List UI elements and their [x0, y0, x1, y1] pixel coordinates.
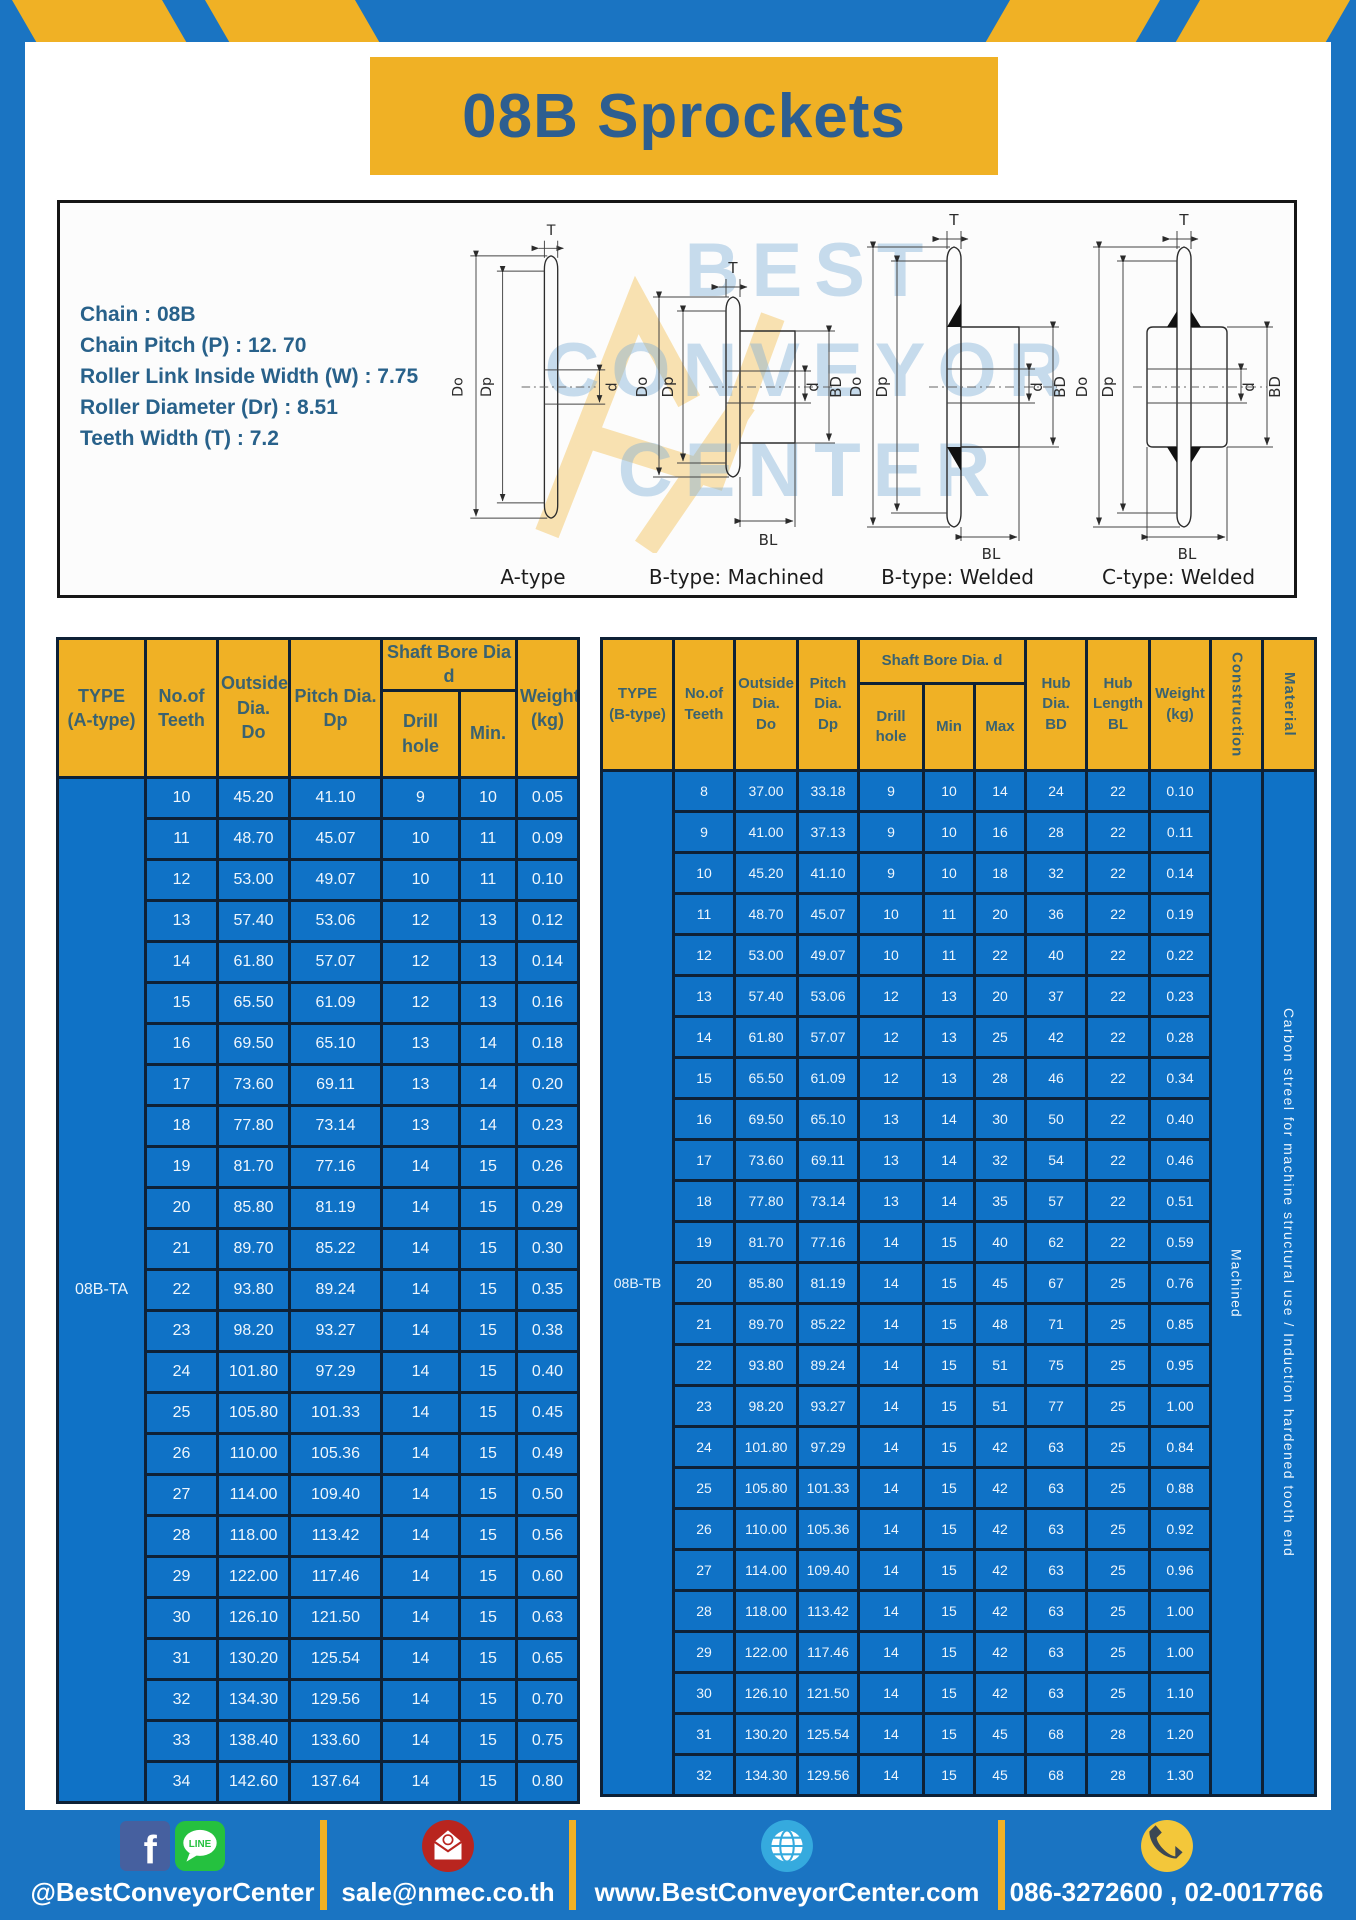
cell: 31	[674, 1714, 735, 1755]
cell: 0.09	[517, 818, 579, 859]
cell: 0.16	[517, 982, 579, 1023]
svg-text:Do: Do	[633, 377, 651, 398]
cell: 73.60	[218, 1064, 290, 1105]
cell: 57.07	[290, 941, 382, 982]
cell: 81.70	[218, 1146, 290, 1187]
cell: 14	[382, 1187, 460, 1228]
cell: 105.36	[290, 1433, 382, 1474]
cell: 10	[382, 818, 460, 859]
col-header-outside-dia: Outside Dia. Do	[218, 639, 290, 778]
cell: 42	[975, 1468, 1026, 1509]
cell: 15	[460, 1597, 517, 1638]
cell: 19	[146, 1146, 218, 1187]
svg-text:Do: Do	[1073, 377, 1091, 398]
col-header-hub-dia: Hub Dia. BD	[1026, 639, 1087, 771]
cell: 114.00	[735, 1550, 798, 1591]
cell: 13	[382, 1023, 460, 1064]
cell: 49.07	[290, 859, 382, 900]
table-b-type: TYPE (B-type) No.of Teeth Outside Dia. D…	[600, 637, 1317, 1797]
cell: 14	[859, 1509, 924, 1550]
right-border	[1331, 40, 1356, 1920]
cell: 26	[674, 1509, 735, 1550]
footer-divider	[320, 1820, 327, 1910]
cell: 25	[1087, 1345, 1150, 1386]
cell: 0.14	[517, 941, 579, 982]
cell: 14	[924, 1099, 975, 1140]
cell: 8	[674, 771, 735, 812]
cell: 93.80	[218, 1269, 290, 1310]
cell: 28	[1087, 1755, 1150, 1796]
cell: 97.29	[798, 1427, 859, 1468]
cell: 13	[924, 1058, 975, 1099]
cell: 68	[1026, 1755, 1087, 1796]
cell: 1.10	[1150, 1673, 1211, 1714]
cell: 14	[460, 1105, 517, 1146]
cell: 15	[146, 982, 218, 1023]
website-url[interactable]: www.BestConveyorCenter.com	[595, 1877, 980, 1908]
cell: 20	[674, 1263, 735, 1304]
cell: 113.42	[290, 1515, 382, 1556]
cell: 22	[1087, 1058, 1150, 1099]
cell: 15	[924, 1509, 975, 1550]
cell: 14	[382, 1515, 460, 1556]
cell: 0.40	[517, 1351, 579, 1392]
cell: 21	[674, 1304, 735, 1345]
cell: 10	[460, 777, 517, 818]
cell: 14	[859, 1386, 924, 1427]
cell: 0.75	[517, 1720, 579, 1761]
svg-text:T: T	[727, 259, 738, 277]
cell: 125.54	[798, 1714, 859, 1755]
cell: 14	[382, 1761, 460, 1802]
cell: 0.23	[517, 1105, 579, 1146]
cell: 122.00	[735, 1632, 798, 1673]
cell: 142.60	[218, 1761, 290, 1802]
cell: 137.64	[290, 1761, 382, 1802]
cell: 15	[924, 1263, 975, 1304]
cell: 0.65	[517, 1638, 579, 1679]
cell: 109.40	[798, 1550, 859, 1591]
cell: 63	[1026, 1427, 1087, 1468]
cell: 48.70	[218, 818, 290, 859]
table-row: 26110.00105.3614154263250.92	[602, 1509, 1316, 1550]
cell: 22	[975, 935, 1026, 976]
cell: 18	[975, 853, 1026, 894]
cell: 13	[859, 1099, 924, 1140]
cell: 14	[924, 1181, 975, 1222]
cell: 105.36	[798, 1509, 859, 1550]
cell: 61.80	[218, 941, 290, 982]
cell: 0.05	[517, 777, 579, 818]
table-row: 2189.7085.2214154871250.85	[602, 1304, 1316, 1345]
cell: 21	[146, 1228, 218, 1269]
cell: 28	[674, 1591, 735, 1632]
yellow-stripe	[12, 0, 186, 42]
cell: 0.56	[517, 1515, 579, 1556]
cell: 0.49	[517, 1433, 579, 1474]
cell: 61.80	[735, 1017, 798, 1058]
col-header-weight: Weight (kg)	[517, 639, 579, 778]
table-row: 28118.00113.4214154263251.00	[602, 1591, 1316, 1632]
cell: 89.24	[290, 1269, 382, 1310]
cell: 65.50	[218, 982, 290, 1023]
cell: 12	[146, 859, 218, 900]
cell: 36	[1026, 894, 1087, 935]
cell: 93.27	[798, 1386, 859, 1427]
cell: 15	[460, 1679, 517, 1720]
figure-b-welded: T Do Dp d BD	[845, 211, 1070, 589]
footer-website[interactable]: www.BestConveyorCenter.com	[576, 1810, 998, 1920]
cell: 15	[460, 1228, 517, 1269]
cell: 69.50	[735, 1099, 798, 1140]
svg-text:LINE: LINE	[189, 1839, 212, 1850]
page-title: 08B Sprockets	[462, 81, 906, 152]
cell: 42	[1026, 1017, 1087, 1058]
figure-caption: B-type: Machined	[649, 565, 824, 589]
cell: 14	[859, 1468, 924, 1509]
cell: 15	[460, 1474, 517, 1515]
cell: 25	[1087, 1304, 1150, 1345]
cell: 67	[1026, 1263, 1087, 1304]
cell: 14	[859, 1304, 924, 1345]
cell: 113.42	[798, 1591, 859, 1632]
cell: 16	[975, 812, 1026, 853]
table-row: 29122.00117.4614154263251.00	[602, 1632, 1316, 1673]
cell: 114.00	[218, 1474, 290, 1515]
cell: 16	[674, 1099, 735, 1140]
cell: 0.70	[517, 1679, 579, 1720]
cell: 0.14	[1150, 853, 1211, 894]
cell: 15	[460, 1392, 517, 1433]
cell: 10	[859, 935, 924, 976]
cell: 15	[924, 1304, 975, 1345]
cell: 9	[859, 771, 924, 812]
cell: 81.19	[290, 1187, 382, 1228]
cell: 117.46	[290, 1556, 382, 1597]
cell: 138.40	[218, 1720, 290, 1761]
cell: 42	[975, 1632, 1026, 1673]
cell: 49.07	[798, 935, 859, 976]
spec-line: Roller Link Inside Width (W) : 7.75	[80, 361, 510, 392]
cell: 14	[859, 1755, 924, 1796]
table-a-type: TYPE (A-type) No.of Teeth Outside Dia. D…	[56, 637, 580, 1804]
cell: 25	[1087, 1468, 1150, 1509]
cell: 22	[1087, 812, 1150, 853]
cell: 14	[975, 771, 1026, 812]
phone-icon[interactable]	[1140, 1819, 1194, 1873]
cell: 15	[924, 1345, 975, 1386]
cell: 14	[859, 1632, 924, 1673]
diagram-panel: BEST CONVEYOR CENTER Chain : 08B Chain P…	[57, 200, 1297, 598]
cell: 41.00	[735, 812, 798, 853]
cell: 73.14	[290, 1105, 382, 1146]
cell: 0.63	[517, 1597, 579, 1638]
svg-text:Dp: Dp	[659, 376, 677, 397]
cell: 26	[146, 1433, 218, 1474]
cell: 0.12	[517, 900, 579, 941]
cell: 129.56	[290, 1679, 382, 1720]
cell: 45.20	[735, 853, 798, 894]
cell: 45.07	[290, 818, 382, 859]
cell: 14	[859, 1345, 924, 1386]
cell: 81.19	[798, 1263, 859, 1304]
cell: 133.60	[290, 1720, 382, 1761]
cell: 30	[146, 1597, 218, 1638]
cell: 117.46	[798, 1632, 859, 1673]
svg-text:BD: BD	[1051, 376, 1069, 398]
cell: 22	[1087, 853, 1150, 894]
cell: 98.20	[218, 1310, 290, 1351]
cell: 69.50	[218, 1023, 290, 1064]
table-row: 08B-TA1045.2041.109100.05	[58, 777, 579, 818]
cell: 22	[1087, 1222, 1150, 1263]
cell: 122.00	[218, 1556, 290, 1597]
cell: 105.80	[218, 1392, 290, 1433]
cell: 85.80	[735, 1263, 798, 1304]
cell: 15	[924, 1591, 975, 1632]
footer-contact-bar: f LINE @BestConveyorCenter sale@nmec.co.…	[25, 1810, 1331, 1920]
cell: 13	[460, 941, 517, 982]
cell: 14	[382, 1638, 460, 1679]
cell: 15	[674, 1058, 735, 1099]
cell: 30	[674, 1673, 735, 1714]
cell: 0.85	[1150, 1304, 1211, 1345]
footer-phone[interactable]: 086-3272600 , 02-0017766	[1005, 1810, 1328, 1920]
cell: 15	[924, 1673, 975, 1714]
cell: 14	[382, 1597, 460, 1638]
cell: 25	[975, 1017, 1026, 1058]
cell: 14	[460, 1064, 517, 1105]
cell: 45.07	[798, 894, 859, 935]
cell: 22	[1087, 1017, 1150, 1058]
cell: 42	[975, 1427, 1026, 1468]
cell: 89.70	[735, 1304, 798, 1345]
cell: 65.10	[798, 1099, 859, 1140]
table-row: 2398.2093.2714155177251.00	[602, 1386, 1316, 1427]
cell: 12	[859, 976, 924, 1017]
cell: 0.10	[517, 859, 579, 900]
cell: 29	[146, 1556, 218, 1597]
col-header-shaft-bore: Shaft Bore Dia. d	[859, 639, 1026, 684]
cell: 22	[1087, 976, 1150, 1017]
cell: 12	[859, 1017, 924, 1058]
cell: 69.11	[290, 1064, 382, 1105]
cell: 15	[460, 1146, 517, 1187]
cell: 53.06	[290, 900, 382, 941]
cell: 0.51	[1150, 1181, 1211, 1222]
cell: 0.34	[1150, 1058, 1211, 1099]
cell: 73.60	[735, 1140, 798, 1181]
cell: 15	[460, 1720, 517, 1761]
cell: 101.33	[798, 1468, 859, 1509]
cell: 18	[146, 1105, 218, 1146]
cell: 0.96	[1150, 1550, 1211, 1591]
cell: 10	[382, 859, 460, 900]
cell: 15	[460, 1310, 517, 1351]
cell: 1.00	[1150, 1386, 1211, 1427]
social-handle[interactable]: @BestConveyorCenter	[31, 1877, 315, 1908]
cell: 10	[146, 777, 218, 818]
svg-text:d: d	[1028, 382, 1046, 392]
cell: 69.11	[798, 1140, 859, 1181]
title-banner: 08B Sprockets	[370, 57, 998, 175]
svg-text:T: T	[546, 223, 556, 239]
cell: 9	[859, 812, 924, 853]
cell: 42	[975, 1550, 1026, 1591]
cell: 25	[1087, 1632, 1150, 1673]
cell: 14	[460, 1023, 517, 1064]
spec-line: Roller Diameter (Dr) : 8.51	[80, 392, 510, 423]
cell: 14	[859, 1427, 924, 1468]
cell: 28	[975, 1058, 1026, 1099]
table-row: 08B-TB837.0033.189101424220.10MachinedCa…	[602, 771, 1316, 812]
cell: 129.56	[798, 1755, 859, 1796]
cell: 12	[382, 900, 460, 941]
cell: 13	[146, 900, 218, 941]
yellow-stripe	[986, 0, 1160, 42]
facebook-icon[interactable]: f	[120, 1821, 170, 1871]
cell: 19	[674, 1222, 735, 1263]
cell: 63	[1026, 1632, 1087, 1673]
cell: 13	[859, 1181, 924, 1222]
cell: 14	[859, 1550, 924, 1591]
type-label-cell: 08B-TA	[58, 777, 146, 1802]
cell: 25	[1087, 1673, 1150, 1714]
globe-icon[interactable]	[760, 1819, 814, 1873]
table-row: 2293.8089.2414155175250.95	[602, 1345, 1316, 1386]
table-row: 941.0037.139101628220.11	[602, 812, 1316, 853]
top-decorative-band	[0, 0, 1356, 42]
cell: 24	[1026, 771, 1087, 812]
svg-text:T: T	[1178, 211, 1189, 229]
cell: 65.50	[735, 1058, 798, 1099]
cell: 0.18	[517, 1023, 579, 1064]
cell: 0.29	[517, 1187, 579, 1228]
cell: 42	[975, 1591, 1026, 1632]
cell: 85.80	[218, 1187, 290, 1228]
cell: 45	[975, 1263, 1026, 1304]
cell: 13	[859, 1140, 924, 1181]
cell: 57	[1026, 1181, 1087, 1222]
cell: 0.84	[1150, 1427, 1211, 1468]
table-row: 25105.80101.3314154263250.88	[602, 1468, 1316, 1509]
phone-numbers[interactable]: 086-3272600 , 02-0017766	[1010, 1877, 1324, 1908]
cell: 0.30	[517, 1228, 579, 1269]
svg-text:BL: BL	[759, 531, 778, 549]
cell: 14	[859, 1714, 924, 1755]
cell: 27	[674, 1550, 735, 1591]
cell: 63	[1026, 1550, 1087, 1591]
cell: 25	[1087, 1386, 1150, 1427]
cell: 13	[382, 1064, 460, 1105]
cell: 37	[1026, 976, 1087, 1017]
cell: 17	[674, 1140, 735, 1181]
cell: 22	[146, 1269, 218, 1310]
footer-social[interactable]: f LINE @BestConveyorCenter	[25, 1810, 320, 1920]
svg-text:d: d	[1240, 382, 1258, 392]
table-row: 1981.7077.1614154062220.59	[602, 1222, 1316, 1263]
col-header-type: TYPE (A-type)	[58, 639, 146, 778]
cell: 77.80	[218, 1105, 290, 1146]
cell: 1.00	[1150, 1591, 1211, 1632]
cell: 12	[382, 941, 460, 982]
cell: 11	[460, 859, 517, 900]
cell: 11	[146, 818, 218, 859]
cell: 15	[460, 1351, 517, 1392]
cell: 0.10	[1150, 771, 1211, 812]
cell: 0.23	[1150, 976, 1211, 1017]
cell: 9	[859, 853, 924, 894]
cell: 14	[382, 1146, 460, 1187]
table-row: 1461.8057.0712132542220.28	[602, 1017, 1316, 1058]
cell: 22	[1087, 1099, 1150, 1140]
cell: 22	[1087, 894, 1150, 935]
cell: 32	[674, 1755, 735, 1796]
cell: 15	[924, 1386, 975, 1427]
cell: 121.50	[290, 1597, 382, 1638]
table-row: 1669.5065.1013143050220.40	[602, 1099, 1316, 1140]
cell: 118.00	[735, 1591, 798, 1632]
table-row: 1773.6069.1113143254220.46	[602, 1140, 1316, 1181]
cell: 81.70	[735, 1222, 798, 1263]
cell: 10	[674, 853, 735, 894]
col-header-shaft-bore: Shaft Bore Dia d	[382, 639, 517, 691]
cell: 89.24	[798, 1345, 859, 1386]
cell: 41.10	[290, 777, 382, 818]
cell: 27	[146, 1474, 218, 1515]
table-row: 31130.20125.5414154568281.20	[602, 1714, 1316, 1755]
cell: 18	[674, 1181, 735, 1222]
svg-text:Dp: Dp	[873, 376, 891, 397]
cell: 10	[924, 812, 975, 853]
cell: 134.30	[218, 1679, 290, 1720]
cell: 15	[460, 1638, 517, 1679]
svg-text:BD: BD	[1266, 376, 1284, 398]
cell: 48	[975, 1304, 1026, 1345]
type-label-cell: 08B-TB	[602, 771, 674, 1796]
figure-caption: B-type: Welded	[881, 565, 1034, 589]
cell: 14	[382, 1720, 460, 1761]
cell: 48.70	[735, 894, 798, 935]
cell: 33	[146, 1720, 218, 1761]
cell: 0.45	[517, 1392, 579, 1433]
cell: 42	[975, 1673, 1026, 1714]
cell: 22	[1087, 1140, 1150, 1181]
cell: 14	[382, 1556, 460, 1597]
cell: 15	[924, 1468, 975, 1509]
cell: 40	[1026, 935, 1087, 976]
cell: 14	[382, 1228, 460, 1269]
cell: 33.18	[798, 771, 859, 812]
cell: 118.00	[218, 1515, 290, 1556]
cell: 12	[382, 982, 460, 1023]
cell: 0.19	[1150, 894, 1211, 935]
cell: 29	[674, 1632, 735, 1673]
cell: 0.59	[1150, 1222, 1211, 1263]
email-icon[interactable]	[421, 1819, 475, 1873]
footer-email[interactable]: sale@nmec.co.th	[327, 1810, 569, 1920]
cell: 61.09	[798, 1058, 859, 1099]
email-address[interactable]: sale@nmec.co.th	[341, 1877, 554, 1908]
line-icon[interactable]: LINE	[175, 1821, 225, 1871]
cell: 0.38	[517, 1310, 579, 1351]
cell: 14	[674, 1017, 735, 1058]
cell: 65.10	[290, 1023, 382, 1064]
cell: 11	[460, 818, 517, 859]
cell: 57.07	[798, 1017, 859, 1058]
cell: 15	[460, 1187, 517, 1228]
cell: 11	[924, 894, 975, 935]
